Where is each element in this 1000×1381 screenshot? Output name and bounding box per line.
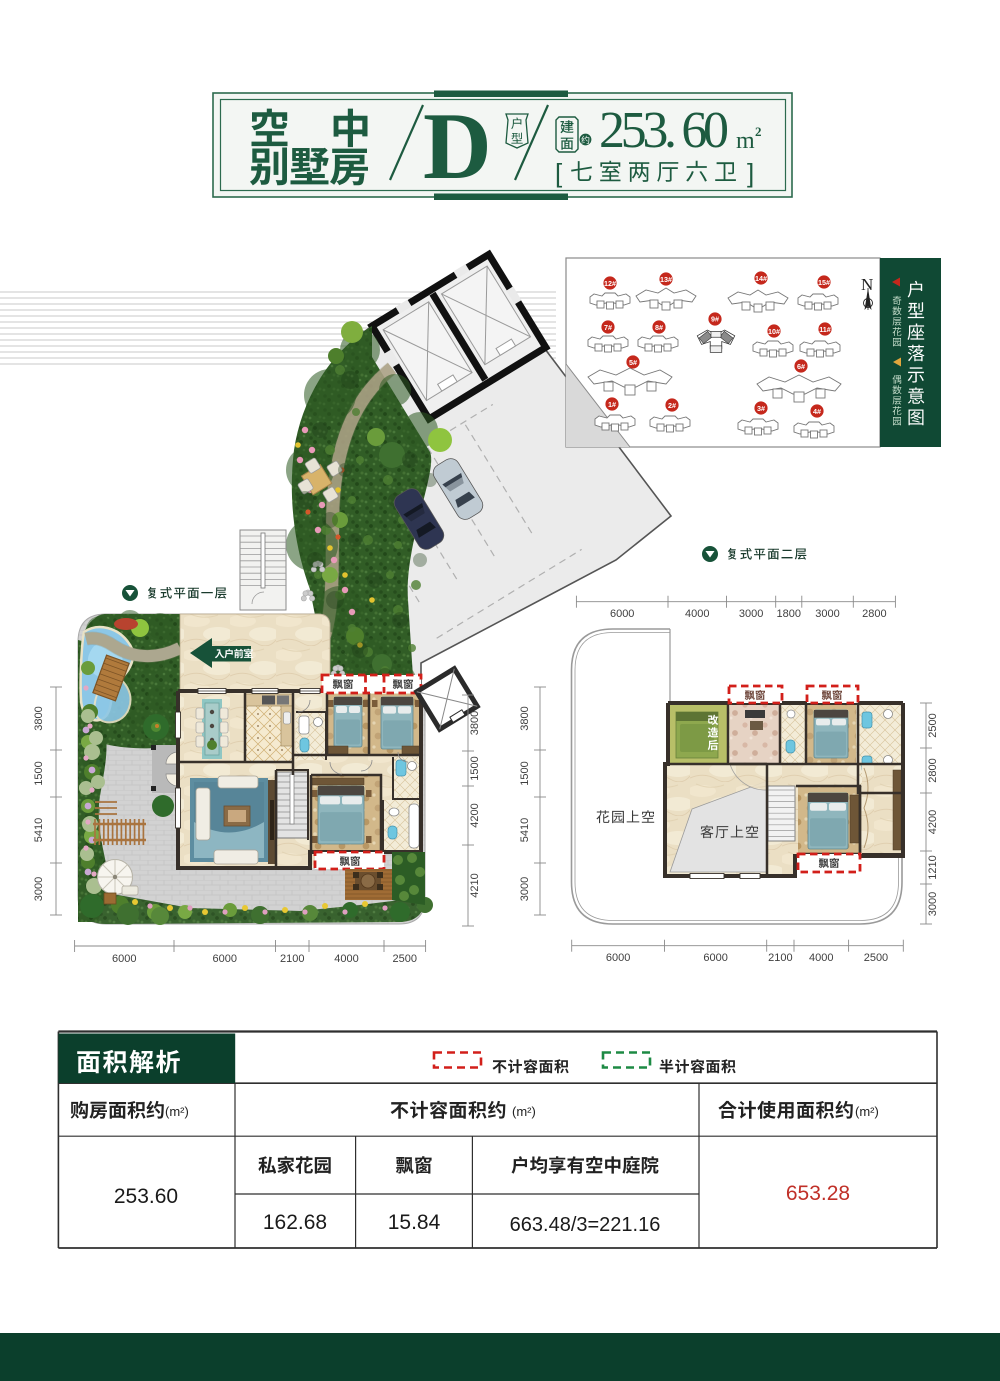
svg-text:4200: 4200 (469, 803, 481, 827)
svg-text:3000: 3000 (33, 877, 45, 901)
svg-text:663.48/3=221.16: 663.48/3=221.16 (510, 1214, 661, 1236)
svg-text:6000: 6000 (703, 952, 727, 964)
svg-text:2: 2 (755, 124, 762, 139)
svg-text:4#: 4# (813, 407, 821, 416)
svg-text:1500: 1500 (469, 756, 481, 780)
svg-text:(m²): (m²) (512, 1104, 536, 1119)
svg-text:11#: 11# (819, 325, 831, 334)
svg-text:2500: 2500 (864, 952, 888, 964)
svg-text:2500: 2500 (927, 713, 939, 737)
svg-text:D: D (423, 93, 492, 199)
svg-text:5410: 5410 (519, 818, 531, 842)
svg-text:]: ] (747, 158, 754, 188)
svg-text:14#: 14# (755, 274, 767, 283)
svg-text:6000: 6000 (610, 608, 634, 620)
svg-text:253.60: 253.60 (114, 1185, 178, 1208)
svg-text:253. 60: 253. 60 (599, 102, 729, 159)
svg-text:2500: 2500 (393, 953, 417, 965)
svg-text:3800: 3800 (33, 706, 45, 730)
svg-text:2800: 2800 (927, 758, 939, 782)
svg-text:3#: 3# (757, 404, 765, 413)
svg-text:1800: 1800 (777, 608, 801, 620)
svg-text:4000: 4000 (685, 608, 709, 620)
svg-text:13#: 13# (660, 275, 672, 284)
svg-text:(m²): (m²) (165, 1104, 189, 1119)
svg-text:3000: 3000 (815, 608, 839, 620)
svg-text:4210: 4210 (469, 873, 481, 897)
svg-text:5#: 5# (629, 358, 637, 367)
svg-text:3000: 3000 (739, 608, 763, 620)
svg-text:6000: 6000 (606, 952, 630, 964)
svg-text:653.28: 653.28 (786, 1182, 850, 1205)
svg-text:4000: 4000 (334, 953, 358, 965)
svg-text:15.84: 15.84 (388, 1211, 441, 1234)
svg-text:1500: 1500 (33, 761, 45, 785)
svg-text:3800: 3800 (469, 711, 481, 735)
svg-text:3800: 3800 (519, 706, 531, 730)
svg-text:(m²): (m²) (855, 1104, 879, 1119)
svg-text:3000: 3000 (519, 877, 531, 901)
svg-text:6000: 6000 (112, 953, 136, 965)
svg-text:15#: 15# (818, 278, 830, 287)
svg-text:2100: 2100 (280, 953, 304, 965)
svg-text:m: m (736, 128, 755, 154)
svg-text:N: N (861, 275, 873, 294)
svg-text:8#: 8# (655, 323, 663, 332)
svg-text:[: [ (555, 158, 563, 188)
svg-text:1500: 1500 (519, 761, 531, 785)
svg-text:12#: 12# (604, 279, 616, 288)
svg-text:162.68: 162.68 (263, 1211, 327, 1234)
svg-text:9#: 9# (711, 314, 719, 323)
svg-text:1#: 1# (608, 400, 616, 409)
svg-text:10#: 10# (768, 327, 780, 336)
svg-text:5410: 5410 (33, 818, 45, 842)
svg-text:2100: 2100 (768, 952, 792, 964)
svg-text:7#: 7# (604, 323, 612, 332)
svg-text:4000: 4000 (809, 952, 833, 964)
svg-text:6000: 6000 (213, 953, 237, 965)
svg-text:6#: 6# (797, 362, 805, 371)
svg-text:1210: 1210 (927, 855, 939, 879)
svg-text:3000: 3000 (927, 892, 939, 916)
svg-text:4200: 4200 (927, 810, 939, 834)
svg-text:2#: 2# (668, 401, 676, 410)
svg-text:2800: 2800 (862, 608, 886, 620)
